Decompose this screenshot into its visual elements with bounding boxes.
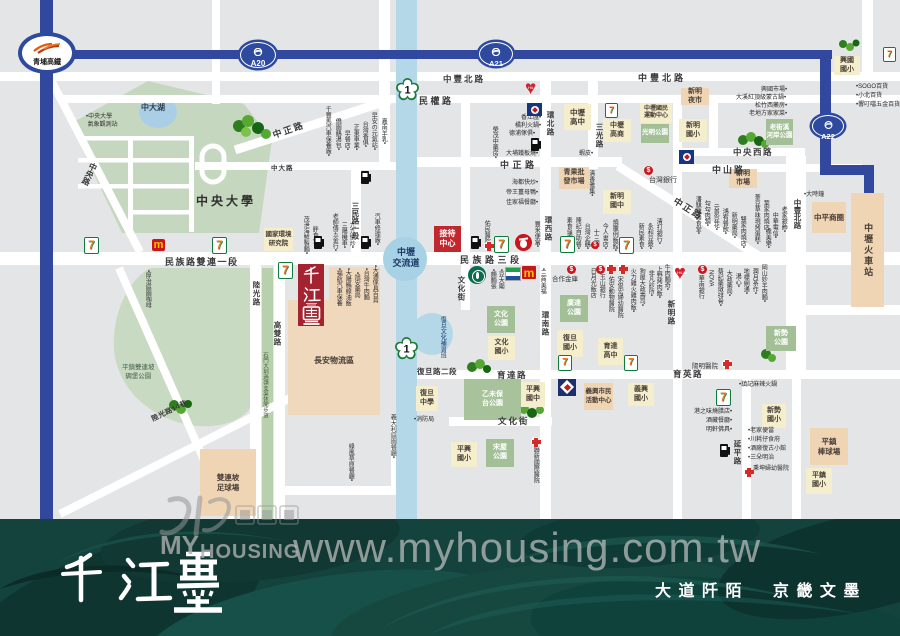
- svg-text:1: 1: [403, 344, 409, 356]
- svg-text:HOUSING: HOUSING: [200, 541, 300, 563]
- svg-text:MY: MY: [160, 530, 199, 560]
- svg-text:1: 1: [404, 85, 410, 97]
